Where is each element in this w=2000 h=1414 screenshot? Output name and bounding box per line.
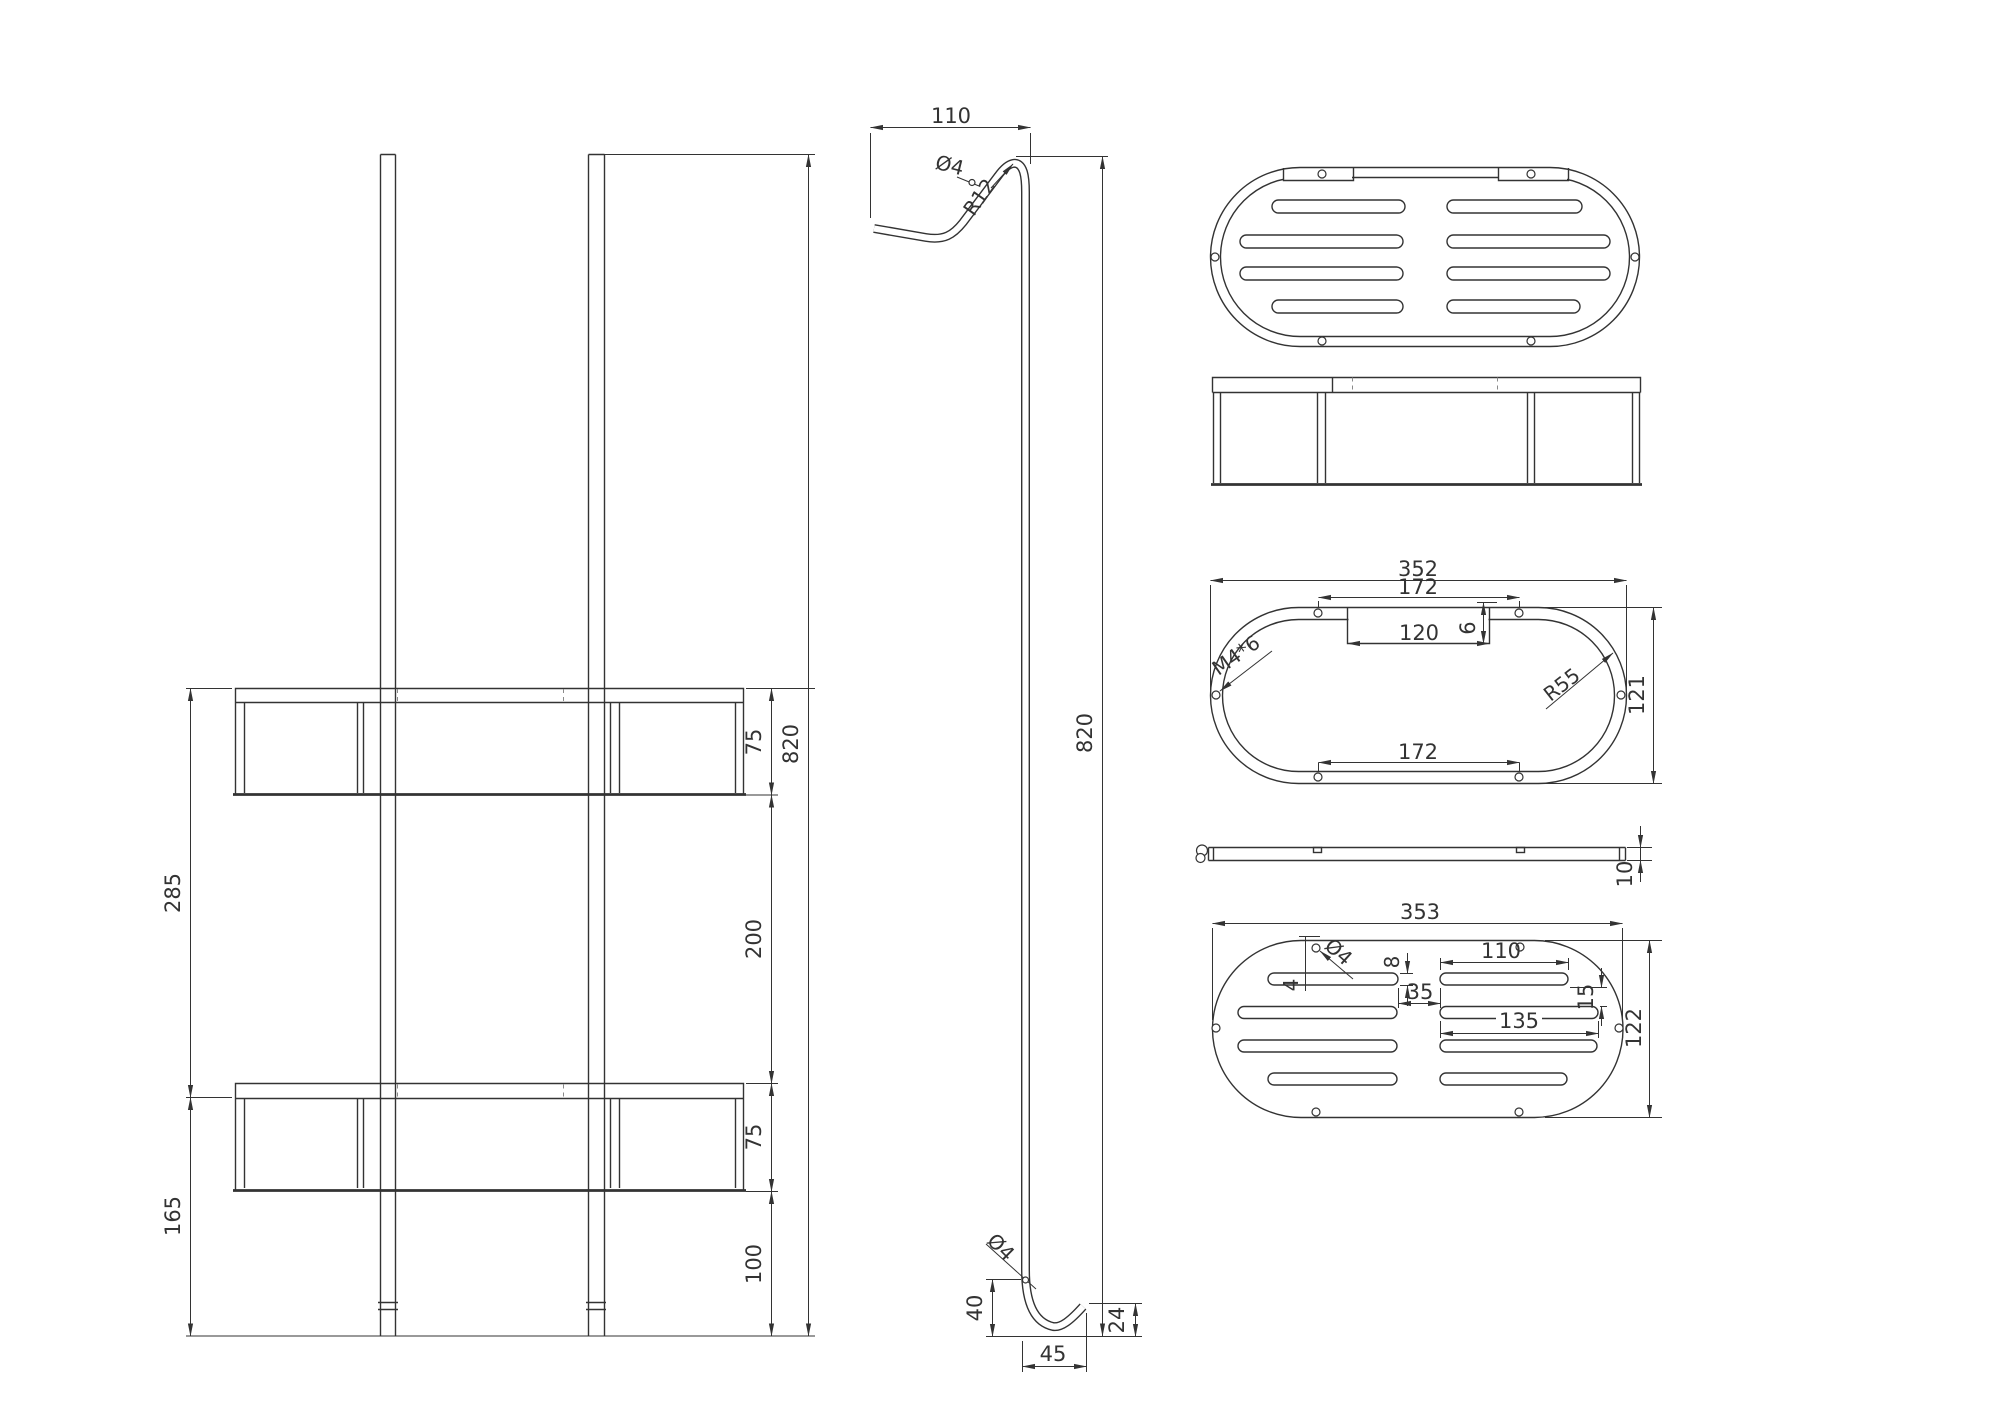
dim-135: 135	[1499, 1009, 1539, 1033]
dim-353: 353	[1400, 900, 1440, 924]
dim-172-bottom: 172	[1398, 740, 1438, 764]
cad-drawing: 285 165 75 200 75 100 820 110 Ø4 R12 820…	[0, 0, 2000, 1414]
dim-110-profile: 110	[931, 104, 971, 128]
screw-hole	[1527, 170, 1535, 178]
rail-joint-ticks	[378, 1303, 606, 1310]
drain-slot	[1272, 200, 1405, 213]
tab-edges-hidden	[1353, 378, 1498, 393]
plate-outline	[1213, 941, 1624, 1118]
label-dia4-plate: Ø4	[1320, 933, 1357, 970]
dim-24: 24	[1105, 1307, 1129, 1334]
drain-slot	[1440, 1073, 1567, 1085]
drain-slot	[1440, 1040, 1597, 1052]
dim-100: 100	[742, 1244, 766, 1284]
tray-outer-rim	[1211, 168, 1640, 347]
screw-hole	[1617, 691, 1625, 699]
screw-hole	[1212, 691, 1220, 699]
screw-hole	[1212, 1024, 1220, 1032]
plate-extension-lines	[1213, 928, 1663, 1118]
drain-slot	[1238, 1007, 1397, 1019]
dim-75-bottom: 75	[742, 1124, 766, 1151]
screw-hole	[1312, 944, 1320, 952]
screw-hole	[1318, 337, 1326, 345]
basket-posts	[1214, 393, 1640, 484]
drain-slot	[1440, 973, 1568, 985]
drain-slot	[1240, 235, 1403, 248]
dim-285: 285	[161, 873, 185, 913]
tray-screw-holes	[1211, 170, 1639, 345]
lower-basket-hidden	[398, 1085, 564, 1098]
bar-side-view: 10	[1196, 826, 1652, 887]
screw-hole	[1515, 609, 1523, 617]
upper-basket-outline	[236, 689, 744, 796]
basket-front-view	[1211, 378, 1642, 485]
drain-slot	[1268, 1073, 1397, 1085]
plate-screw-holes	[1212, 943, 1623, 1116]
dim-820-profile: 820	[1073, 713, 1097, 753]
drain-slot	[1447, 300, 1580, 313]
screw-hole	[1515, 773, 1523, 781]
drain-slot	[1447, 200, 1582, 213]
screw-hole	[1211, 253, 1219, 261]
dim-110-plate: 110	[1481, 939, 1521, 963]
tray-drain-slots	[1240, 200, 1610, 313]
dim-10: 10	[1613, 861, 1637, 888]
dim-40: 40	[963, 1295, 987, 1322]
hook-wire-fill	[874, 163, 1083, 1326]
dim-6: 6	[1456, 621, 1480, 634]
drain-slot	[1240, 267, 1403, 280]
screw-hole	[1515, 1108, 1523, 1116]
dim-35: 35	[1407, 980, 1434, 1004]
drain-slot	[1447, 235, 1610, 248]
screw-hole	[1318, 170, 1326, 178]
front-view: 285 165 75 200 75 100 820	[161, 155, 815, 1337]
profile-extension-lines	[871, 133, 1143, 1372]
cad-drawing-page: 285 165 75 200 75 100 820 110 Ø4 R12 820…	[0, 0, 2000, 1414]
screw-hole	[1314, 609, 1322, 617]
dim-45: 45	[1040, 1342, 1067, 1366]
screw-hole	[1314, 773, 1322, 781]
bar-outline	[1209, 848, 1626, 861]
bar-end-knob-small	[1196, 854, 1205, 863]
lower-basket-wires	[245, 1099, 736, 1189]
label-m4x6: M4*6	[1208, 630, 1265, 680]
drain-slot	[1447, 267, 1610, 280]
dim-75-top: 75	[742, 729, 766, 756]
dim-120: 120	[1399, 621, 1439, 645]
dim-122: 122	[1622, 1008, 1646, 1048]
label-dia4-top: Ø4	[933, 150, 966, 180]
dim-172-top: 172	[1398, 575, 1438, 599]
ring-frame-view: 352 172 120 6 M4*6 R55 121 172	[1208, 557, 1662, 784]
front-extension-lines	[186, 155, 815, 1337]
dim-200: 200	[742, 919, 766, 959]
label-r55: R55	[1539, 663, 1585, 706]
screw-hole	[1312, 1108, 1320, 1116]
hang-rails	[381, 155, 605, 1337]
dim-8: 8	[1380, 956, 1404, 969]
drain-slot	[1272, 300, 1403, 313]
dim-165: 165	[161, 1196, 185, 1236]
bar-post-notch	[1517, 848, 1525, 853]
lower-basket-outline	[236, 1084, 744, 1192]
upper-basket-hidden	[398, 689, 564, 702]
hook-wire-outline	[874, 163, 1083, 1326]
dim-121: 121	[1625, 675, 1649, 715]
upper-basket-wires	[245, 703, 736, 794]
basket-top-view	[1211, 168, 1640, 347]
plate-bottom-view: 353 122 Ø4 4 8 35 110 15 135	[1212, 900, 1662, 1118]
bar-extension-lines	[1627, 848, 1652, 861]
drain-slot	[1238, 1040, 1397, 1052]
label-dia4-bottom: Ø4	[982, 1228, 1019, 1265]
screw-hole	[1527, 337, 1535, 345]
dim-820-front: 820	[779, 724, 803, 764]
screw-hole	[1631, 253, 1639, 261]
bar-post-notch	[1314, 848, 1322, 853]
basket-rim-band	[1213, 378, 1641, 393]
dia4-bottom-point	[1023, 1277, 1029, 1283]
side-profile-view: 110 Ø4 R12 820 Ø4 40 45 24	[871, 104, 1143, 1372]
dim-15: 15	[1574, 984, 1598, 1011]
dim-4: 4	[1279, 979, 1303, 992]
